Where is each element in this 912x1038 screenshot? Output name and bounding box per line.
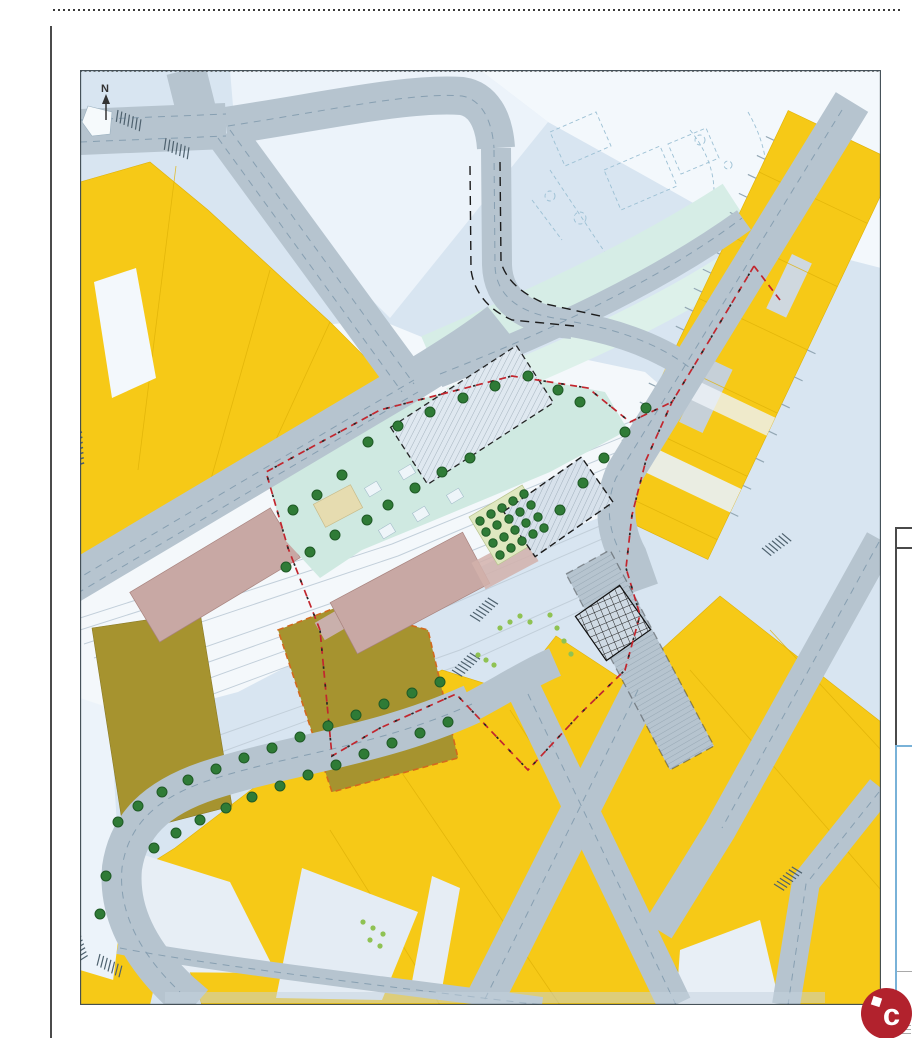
bush [547, 612, 552, 617]
panel-horizontal-rule-3 [897, 971, 912, 972]
tree [516, 508, 524, 516]
bush [377, 943, 382, 948]
tree [211, 764, 221, 774]
tree [157, 787, 167, 797]
bush [561, 638, 566, 643]
page-left-rule [50, 26, 52, 1038]
panel-horizontal-rule-1 [895, 527, 912, 529]
tree [383, 500, 393, 510]
tree [379, 699, 389, 709]
tree [487, 510, 495, 518]
tree [149, 843, 159, 853]
tree [330, 530, 340, 540]
logo-badge: c [861, 988, 912, 1038]
tree [527, 501, 535, 509]
tree [435, 677, 445, 687]
site-plan-map: N [80, 70, 881, 1005]
tree [407, 688, 417, 698]
tree [458, 393, 468, 403]
tree [465, 453, 475, 463]
tree [281, 562, 291, 572]
tree [239, 753, 249, 763]
tree [337, 470, 347, 480]
tree [575, 397, 585, 407]
tree [505, 515, 513, 523]
tree [489, 539, 497, 547]
tree [195, 815, 205, 825]
tree [303, 770, 313, 780]
tree [482, 528, 490, 536]
tree [171, 828, 181, 838]
tree [323, 721, 333, 731]
tree [518, 537, 526, 545]
tree [95, 909, 105, 919]
bush [483, 657, 488, 662]
tree [553, 385, 563, 395]
tree [415, 728, 425, 738]
tree [275, 781, 285, 791]
tree [113, 817, 123, 827]
tree [101, 871, 111, 881]
tree [331, 760, 341, 770]
tree [443, 717, 453, 727]
tree [221, 803, 231, 813]
tree [620, 427, 630, 437]
tree [295, 732, 305, 742]
tree [425, 407, 435, 417]
tree [476, 517, 484, 525]
tree [599, 453, 609, 463]
tree [509, 497, 517, 505]
bush [367, 937, 372, 942]
bush [475, 652, 480, 657]
panel-horizontal-rule-blue [895, 745, 912, 747]
tree [520, 490, 528, 498]
tree [359, 749, 369, 759]
tree [511, 526, 519, 534]
tree [641, 403, 651, 413]
tree [267, 743, 277, 753]
panel-horizontal-rule-2 [895, 547, 912, 549]
bush [360, 919, 365, 924]
site-plan-svg: N [80, 70, 881, 1005]
tree [387, 738, 397, 748]
bush [554, 625, 559, 630]
tree [498, 504, 506, 512]
tree [540, 524, 548, 532]
bush [491, 662, 496, 667]
tree [500, 533, 508, 541]
north-label: N [101, 83, 109, 95]
tree [133, 801, 143, 811]
tree [522, 519, 530, 527]
map-bottom-strip [165, 992, 825, 1003]
tree [578, 478, 588, 488]
bush [527, 619, 532, 624]
page-top-dotted-border [53, 9, 901, 11]
bush [507, 619, 512, 624]
bush [370, 925, 375, 930]
tree [529, 530, 537, 538]
tree [490, 381, 500, 391]
tree [496, 551, 504, 559]
tree [288, 505, 298, 515]
tree [507, 544, 515, 552]
tree [183, 775, 193, 785]
panel-vertical-rule-blue [895, 746, 897, 998]
bush [517, 613, 522, 618]
tree [410, 483, 420, 493]
tree [363, 437, 373, 447]
tree [351, 710, 361, 720]
tree [247, 792, 257, 802]
tree [312, 490, 322, 500]
tree [362, 515, 372, 525]
tree [534, 513, 542, 521]
tree [523, 371, 533, 381]
bush [380, 931, 385, 936]
tree [493, 521, 501, 529]
bush [568, 651, 573, 656]
tree [305, 547, 315, 557]
scanned-page: N c [0, 0, 912, 1038]
tree [555, 505, 565, 515]
tree [437, 467, 447, 477]
bush [497, 625, 502, 630]
panel-vertical-rule-dark [895, 527, 897, 746]
tree [393, 421, 403, 431]
